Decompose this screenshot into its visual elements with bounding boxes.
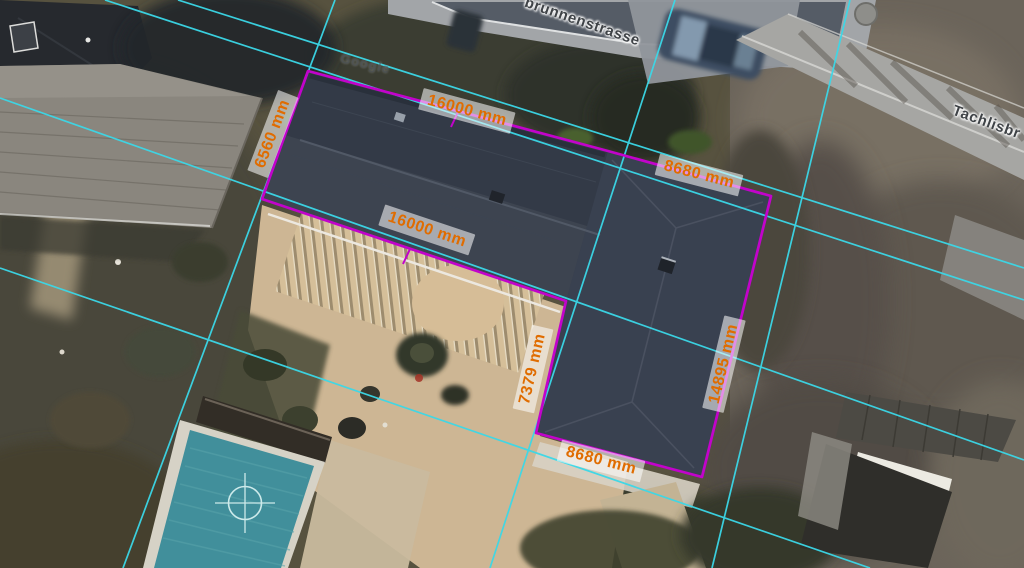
satellite-map-canvas[interactable]: Google brunnenstrasse Tachlisbr 6560 mm … [0, 0, 1024, 568]
chimney [10, 22, 38, 52]
satellite-imagery [0, 0, 1024, 568]
manhole-cover [855, 3, 877, 25]
